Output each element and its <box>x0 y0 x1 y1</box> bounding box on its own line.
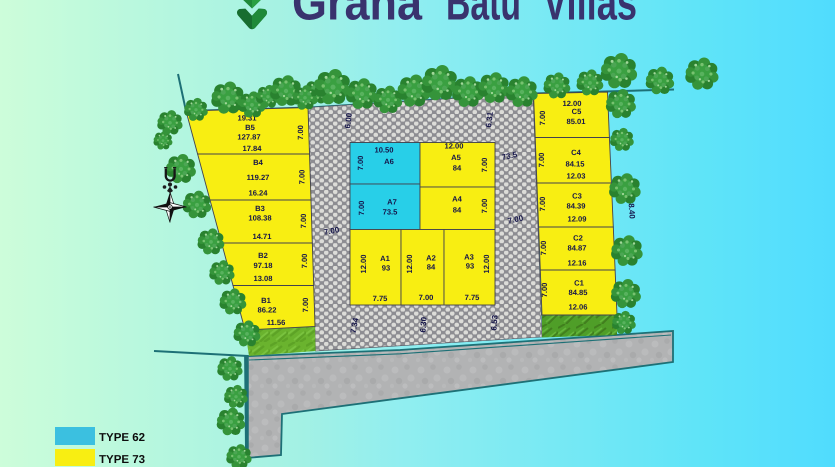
svg-text:B4: B4 <box>253 158 263 167</box>
svg-text:6.53: 6.53 <box>489 314 499 331</box>
svg-text:C4: C4 <box>571 148 581 157</box>
svg-text:12.16: 12.16 <box>567 259 586 268</box>
svg-text:84.85: 84.85 <box>568 288 588 297</box>
svg-text:12.06: 12.06 <box>568 303 587 312</box>
svg-text:B5: B5 <box>245 123 255 132</box>
svg-text:85.01: 85.01 <box>566 117 586 126</box>
svg-text:13.08: 13.08 <box>253 274 272 283</box>
svg-text:7.00: 7.00 <box>480 158 489 173</box>
svg-text:7.00: 7.00 <box>537 153 546 168</box>
svg-text:84.87: 84.87 <box>567 244 586 253</box>
svg-text:A5: A5 <box>451 153 461 162</box>
svg-text:12.00: 12.00 <box>444 142 463 151</box>
svg-text:7.00: 7.00 <box>300 254 309 269</box>
svg-text:7.75: 7.75 <box>465 293 481 302</box>
svg-text:7.00: 7.00 <box>357 201 366 216</box>
svg-text:A6: A6 <box>384 157 394 166</box>
svg-text:A4: A4 <box>452 195 462 204</box>
svg-text:7.00: 7.00 <box>539 241 548 256</box>
svg-text:86.22: 86.22 <box>257 306 276 315</box>
svg-text:A1: A1 <box>380 254 390 263</box>
svg-text:B2: B2 <box>258 251 268 260</box>
svg-text:108.38: 108.38 <box>248 214 271 223</box>
svg-text:84.15: 84.15 <box>565 160 585 169</box>
svg-text:C3: C3 <box>572 192 582 201</box>
svg-text:7.00: 7.00 <box>540 283 549 298</box>
svg-text:A3: A3 <box>464 253 474 262</box>
svg-text:7.00: 7.00 <box>538 111 547 126</box>
svg-text:10.50: 10.50 <box>374 146 393 155</box>
svg-text:C1: C1 <box>574 279 584 288</box>
svg-text:12.00: 12.00 <box>405 254 414 273</box>
svg-text:7.75: 7.75 <box>373 294 389 303</box>
svg-text:Batu: Batu <box>446 0 521 31</box>
svg-text:93: 93 <box>382 264 390 273</box>
svg-text:84: 84 <box>453 164 462 173</box>
svg-text:12.00: 12.00 <box>359 254 368 273</box>
svg-text:7.00: 7.00 <box>356 156 365 171</box>
svg-text:84: 84 <box>453 206 462 215</box>
svg-text:6.30: 6.30 <box>418 316 428 333</box>
svg-text:7.00: 7.00 <box>480 199 489 214</box>
svg-text:84: 84 <box>427 263 436 272</box>
svg-text:TYPE 62: TYPE 62 <box>99 432 145 444</box>
svg-text:7.00: 7.00 <box>419 293 434 302</box>
svg-text:Graha: Graha <box>292 0 423 31</box>
svg-text:17.84: 17.84 <box>242 144 262 153</box>
svg-text:TYPE 73: TYPE 73 <box>99 454 145 466</box>
svg-text:7.00: 7.00 <box>298 170 307 185</box>
svg-text:12.00: 12.00 <box>482 254 491 273</box>
svg-text:7.00: 7.00 <box>301 298 310 313</box>
svg-text:16.24: 16.24 <box>248 189 268 198</box>
svg-text:127.87: 127.87 <box>237 133 260 142</box>
svg-text:12.03: 12.03 <box>566 172 585 181</box>
svg-text:14.71: 14.71 <box>252 232 272 241</box>
svg-text:84.39: 84.39 <box>566 202 585 211</box>
svg-text:7.00: 7.00 <box>296 125 305 140</box>
svg-text:A2: A2 <box>426 254 436 263</box>
svg-text:B3: B3 <box>255 204 265 213</box>
svg-text:C5: C5 <box>572 107 582 116</box>
svg-text:119.27: 119.27 <box>247 173 270 182</box>
svg-text:7.00: 7.00 <box>299 214 308 229</box>
svg-text:A7: A7 <box>387 198 397 207</box>
svg-text:11.56: 11.56 <box>267 318 286 327</box>
svg-text:B1: B1 <box>261 296 271 305</box>
svg-text:73.5: 73.5 <box>383 208 399 217</box>
svg-text:93: 93 <box>466 262 474 271</box>
svg-text:12.09: 12.09 <box>567 215 586 224</box>
svg-text:7.00: 7.00 <box>538 197 547 212</box>
svg-text:C2: C2 <box>573 234 583 243</box>
svg-text:97.18: 97.18 <box>253 261 272 270</box>
svg-text:Villas: Villas <box>543 0 637 31</box>
